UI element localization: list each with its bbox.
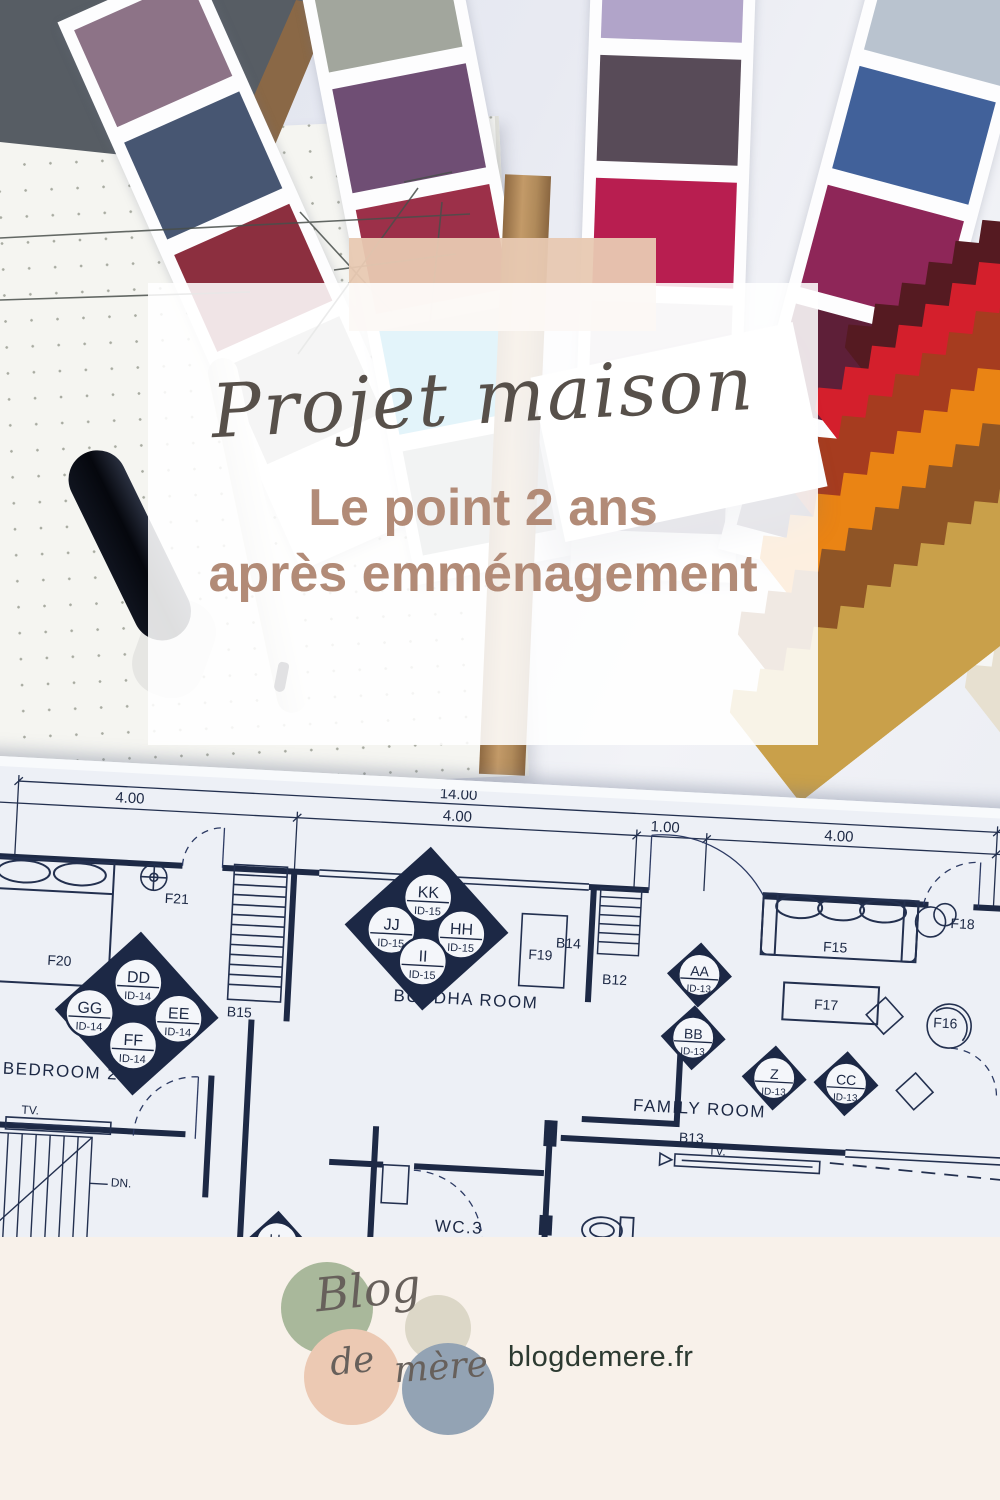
- toilet: [581, 1215, 633, 1237]
- marker-id: ID-15: [414, 905, 441, 918]
- title-overlay-card: Projet maison Le point 2 ans après emmén…: [148, 283, 818, 745]
- dim-label: 14.00: [439, 785, 477, 804]
- marker-code: EE: [168, 1005, 190, 1023]
- tv-stand-family: [659, 1153, 819, 1173]
- swatch-block: [601, 0, 746, 43]
- ceiling-fan: [140, 864, 167, 891]
- swatch-block: [309, 0, 463, 73]
- dashed-line: [829, 1163, 1000, 1191]
- marker-code: BB: [684, 1025, 703, 1042]
- logo-word-mere: mère: [393, 1344, 490, 1391]
- marker-id: ID-13: [833, 1092, 858, 1104]
- marker-id: ID-13: [761, 1086, 786, 1098]
- marker-code: AA: [690, 962, 710, 979]
- pin-subtitle-line1: Le point 2 ans: [148, 475, 818, 541]
- marker-id: ID-13: [680, 1046, 705, 1058]
- marker-cluster-id15: KK ID-15 JJ ID-15 HH ID-15 II ID-15: [340, 842, 512, 1014]
- fixture-label: F16: [933, 1014, 958, 1031]
- dim-label: 4.00: [115, 789, 145, 808]
- marker-code: Z: [770, 1066, 780, 1082]
- logo-word-de: de: [328, 1339, 376, 1384]
- marker-code: GG: [77, 999, 103, 1017]
- floor-plan-drawing: 4.00 14.00 4.00 1.00 4.00: [0, 765, 1000, 1237]
- fixture-label: F17: [814, 996, 839, 1013]
- fixture-label: B15: [227, 1003, 253, 1020]
- room-label: BEDROOM 2: [2, 1059, 118, 1084]
- marker-id: ID-13: [686, 983, 711, 995]
- fixture-label: B12: [602, 971, 628, 988]
- fixture-label: F19: [528, 946, 553, 963]
- fixture-label: B14: [556, 934, 582, 951]
- floor-plan-photo: 4.00 14.00 4.00 1.00 4.00: [0, 700, 1000, 1237]
- marker-id: ID-14: [124, 990, 151, 1003]
- fixture-label: F18: [950, 915, 975, 932]
- marker-ll: LL ID-1: [243, 1209, 311, 1237]
- site-url: blogdemere.fr: [508, 1341, 693, 1374]
- marker-code: DD: [127, 969, 151, 987]
- marker-aa: AA ID-13: [665, 941, 733, 1009]
- pin-subtitle-line2: après emménagement: [148, 541, 818, 607]
- marker-code: CC: [836, 1071, 857, 1088]
- closet-b15: [228, 864, 288, 1002]
- fixture-label: TV.: [708, 1144, 726, 1159]
- room-label: FAMILY ROOM: [633, 1096, 767, 1122]
- swatch-block: [597, 55, 742, 166]
- dim-label: 4.00: [824, 827, 854, 846]
- pin-subtitle: Le point 2 ans après emménagement: [148, 475, 818, 607]
- marker-cc: CC ID-13: [812, 1050, 880, 1118]
- marker-id: ID-14: [164, 1026, 191, 1039]
- dim-label: 4.00: [442, 807, 472, 826]
- wc-door: [381, 1165, 409, 1204]
- marker-id: ID-15: [447, 942, 474, 955]
- dim-label: 1.00: [650, 818, 680, 837]
- marker-id: ID-15: [377, 937, 404, 950]
- fixture-label: DN.: [110, 1175, 131, 1190]
- swatch-block: [832, 66, 996, 205]
- fixture-label: TV.: [21, 1103, 39, 1118]
- pinterest-pin-image: 4.00 14.00 4.00 1.00 4.00: [0, 0, 1000, 1500]
- stairs-b12: [597, 888, 641, 956]
- fixture-label: F20: [47, 952, 72, 969]
- marker-code: HH: [450, 921, 474, 939]
- footer-band: Blog de mère blogdemere.fr: [0, 1237, 1000, 1500]
- fixture-label: F15: [823, 938, 848, 955]
- fixture-label: F21: [164, 890, 189, 907]
- marker-code: II: [418, 948, 428, 965]
- marker-id: ID-15: [408, 969, 435, 982]
- room-label: WC.3: [434, 1216, 483, 1237]
- logo-word-blog: Blog: [312, 1258, 423, 1323]
- marker-id: ID-14: [75, 1020, 102, 1033]
- stairs-down: [0, 1132, 110, 1237]
- blueprint-paper: 4.00 14.00 4.00 1.00 4.00: [0, 755, 1000, 1237]
- marker-code: FF: [123, 1032, 144, 1050]
- pin-title: Projet maison: [146, 338, 820, 459]
- marker-code: KK: [417, 884, 440, 902]
- marker-id: ID-14: [119, 1053, 146, 1066]
- marker-code: JJ: [383, 916, 400, 934]
- fixture-label: B13: [679, 1129, 705, 1146]
- marker-bb: BB ID-13: [659, 1004, 727, 1072]
